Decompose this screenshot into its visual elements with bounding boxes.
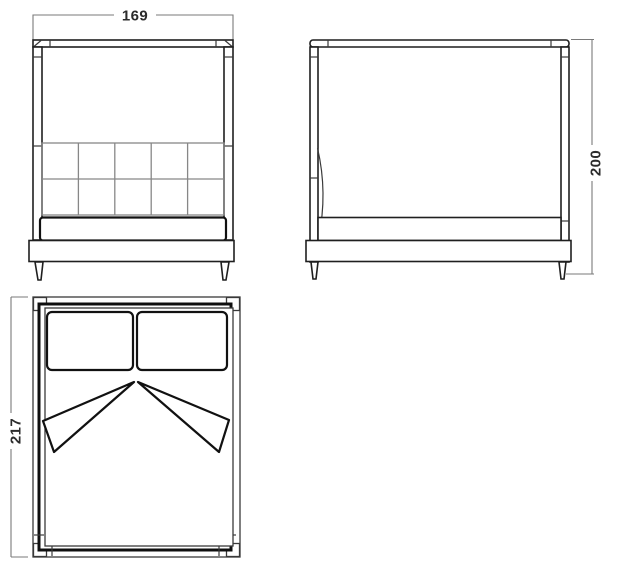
front-width-dimension: 169 [33,8,233,41]
bed-base-front [29,241,234,262]
dimension-line [33,15,114,40]
bed-post-foot [561,47,569,262]
plan-view: 217 [8,297,241,557]
bed-post-right [224,47,233,240]
headboard-grid [42,143,224,215]
mattress-side [318,218,561,241]
bed-base-side [306,241,571,262]
dimension-label-depth: 217 [8,418,25,444]
mattress-front [40,218,226,241]
plan-depth-dimension: 217 [8,297,29,557]
side-view: 200 [306,40,605,280]
dimension-line [156,15,233,40]
canopy-rail-side [310,40,569,47]
pillow-left [47,312,133,370]
pillow-right [137,312,227,370]
bed-post-head [310,47,318,262]
dimension-label-height: 200 [588,150,605,176]
bed-technical-drawing: 169 [0,0,636,576]
bed-leg [221,262,229,280]
side-height-dimension: 200 [566,40,605,275]
dimension-label-width: 169 [122,8,148,25]
technical-drawing-page: 169 [0,0,636,576]
bed-leg [559,262,566,279]
bed-post-left [33,47,42,240]
canopy-rail [33,40,233,47]
front-view: 169 [29,8,234,281]
bed-leg [35,262,43,280]
bed-leg [311,262,318,279]
